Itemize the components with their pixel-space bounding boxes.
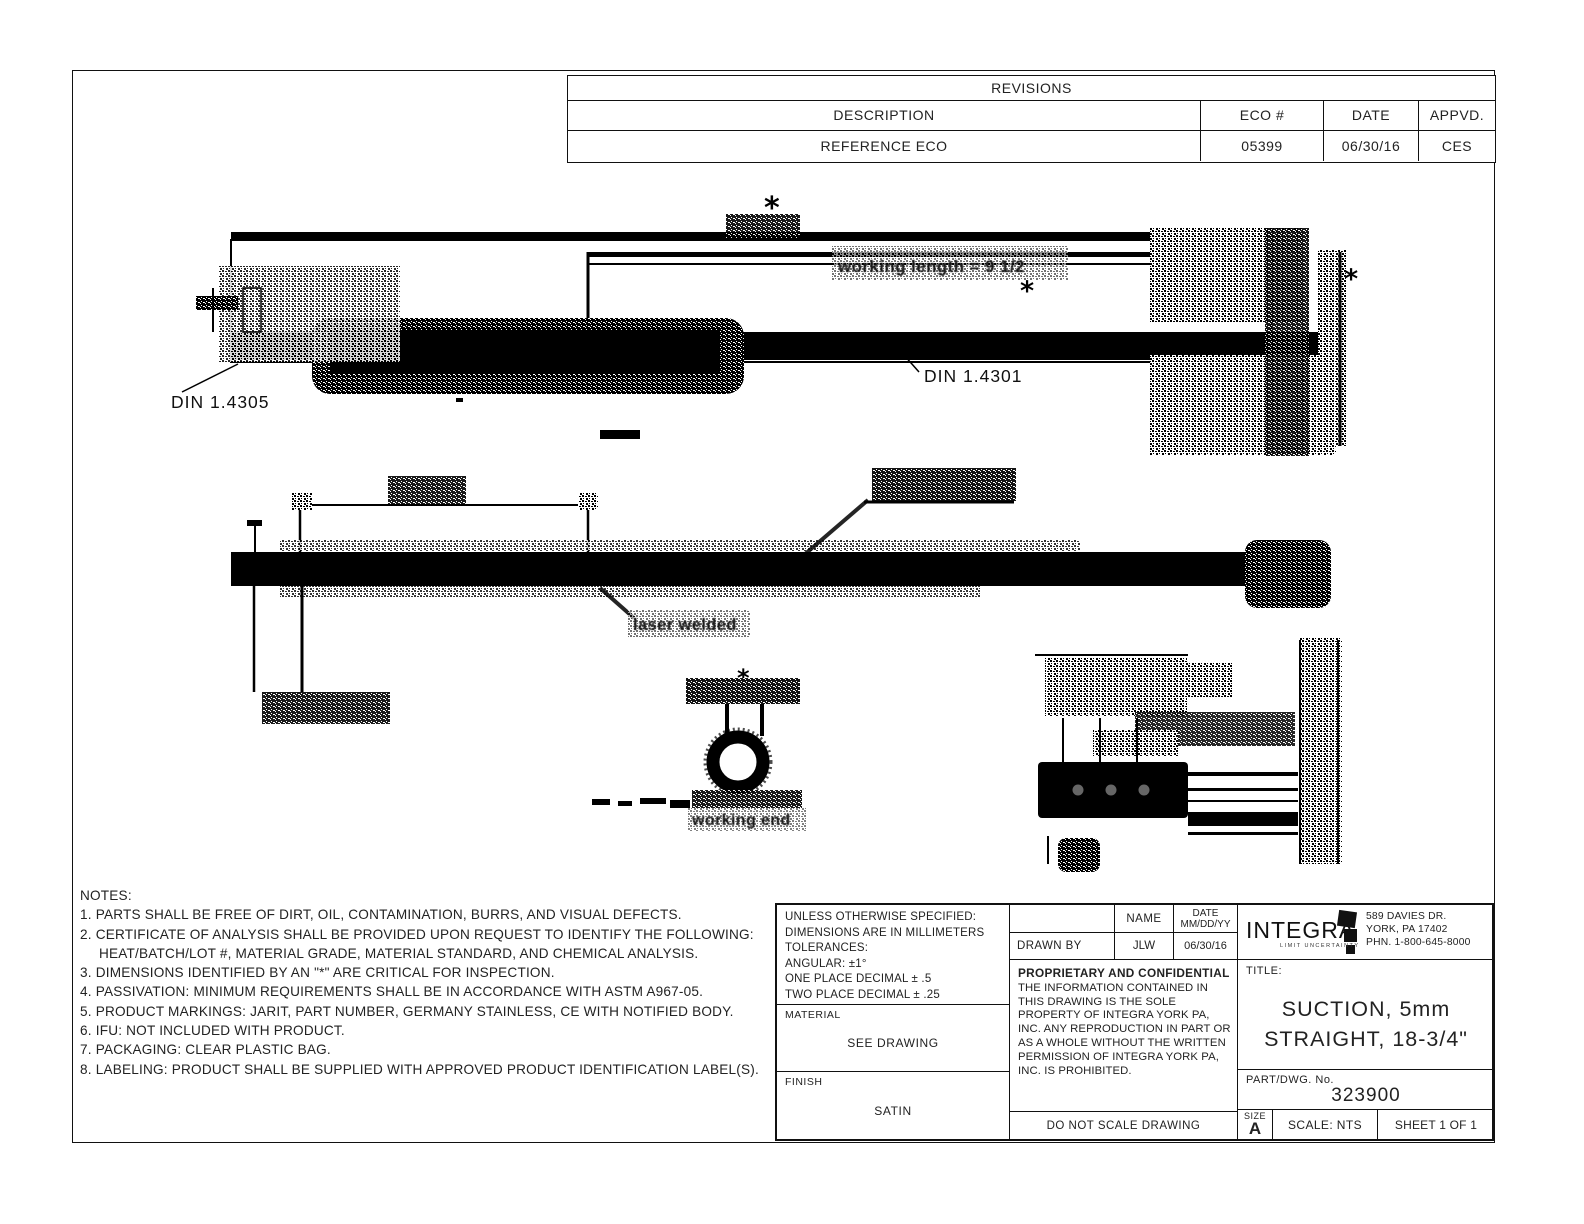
notes-title: NOTES:: [80, 886, 780, 905]
critical-dim-asterisk-3: *: [1344, 264, 1358, 295]
tolerance-line-6: TWO PLACE DECIMAL ± .25: [785, 988, 1009, 1004]
address-line-2: YORK, PA 17402: [1366, 924, 1471, 937]
marking-text-blob: [262, 692, 390, 724]
finish-cell: FINISH SATIN: [777, 1072, 1010, 1139]
working-length-annotation: working length = 9 1/2: [837, 257, 1025, 276]
tolerance-line-5: ONE PLACE DECIMAL ± .5: [785, 972, 1009, 988]
name-header-cell: NAME: [1115, 905, 1174, 933]
date-header-line2: MM/DD/YY: [1174, 919, 1237, 930]
part-number-value: 323900: [1238, 1085, 1494, 1107]
address-line-3: PHN. 1-800-645-8000: [1366, 937, 1471, 950]
suction-shaft-2: [231, 552, 1245, 586]
drawn-by-label: DRAWN BY: [1010, 933, 1115, 960]
note-item-3: 3. DIMENSIONS IDENTIFIED BY AN "*" ARE C…: [80, 963, 780, 982]
date-header-cell: DATE MM/DD/YY: [1174, 905, 1238, 933]
critical-dim-asterisk-1: *: [764, 191, 780, 226]
size-cell: SIZE A: [1238, 1110, 1273, 1141]
note-item-5: 5. PRODUCT MARKINGS: JARIT, PART NUMBER,…: [80, 1002, 780, 1021]
integra-tagline: LIMIT UNCERTAINTY: [1280, 943, 1360, 949]
company-address: 589 DAVIES DR. YORK, PA 17402 PHN. 1-800…: [1366, 911, 1471, 949]
tolerance-line-2: DIMENSIONS ARE IN MILLIMETERS: [785, 926, 1009, 942]
date-header-line1: DATE: [1174, 908, 1237, 919]
size-value: A: [1238, 1121, 1272, 1137]
material-value: SEE DRAWING: [777, 1036, 1009, 1050]
title-label: TITLE:: [1246, 965, 1282, 977]
working-end-detail: * working end: [592, 664, 806, 831]
proprietary-cell: PROPRIETARY AND CONFIDENTIAL THE INFORMA…: [1010, 960, 1238, 1112]
handle-detail: [1035, 638, 1342, 872]
note-item-6: 6. IFU: NOT INCLUDED WITH PRODUCT.: [80, 1021, 780, 1040]
scale-cell: SCALE: NTS: [1273, 1110, 1378, 1141]
drawn-by-name: JLW: [1115, 933, 1174, 960]
header-empty-cell: [1010, 905, 1115, 933]
company-logo-cell: INTEGRA LIMIT UNCERTAINTY 589 DAVIES DR.…: [1238, 905, 1494, 960]
tolerance-line-4: ANGULAR: ±1°: [785, 957, 1009, 973]
din-1-4305-label: DIN 1.4305: [171, 392, 270, 412]
finish-value: SATIN: [777, 1104, 1009, 1118]
note-item-7: 7. PACKAGING: CLEAR PLASTIC BAG.: [80, 1040, 780, 1059]
integra-logo-icon: [1344, 929, 1357, 942]
drawing-title: SUCTION, 5mm STRAIGHT, 18-3/4": [1238, 994, 1494, 1054]
address-line-1: 589 DAVIES DR.: [1366, 911, 1471, 924]
do-not-scale-cell: DO NOT SCALE DRAWING: [1010, 1112, 1238, 1141]
proprietary-body: THE INFORMATION CONTAINED IN THIS DRAWIN…: [1018, 982, 1233, 1079]
notes-list: 1. PARTS SHALL BE FREE OF DIRT, OIL, CON…: [80, 905, 780, 1079]
din-1-4301-label: DIN 1.4301: [924, 366, 1023, 386]
working-end-annotation: working end: [691, 812, 791, 829]
integra-logo-icon: [1337, 910, 1357, 928]
title-cell: TITLE: SUCTION, 5mm STRAIGHT, 18-3/4": [1238, 960, 1494, 1070]
note-item-4: 4. PASSIVATION: MINIMUM REQUIREMENTS SHA…: [80, 982, 780, 1001]
drawing-title-line2: STRAIGHT, 18-3/4": [1238, 1024, 1494, 1054]
note-item-8: 8. LABELING: PRODUCT SHALL BE SUPPLIED W…: [80, 1060, 780, 1079]
material-label: MATERIAL: [785, 1009, 841, 1021]
note-item-1: 1. PARTS SHALL BE FREE OF DIRT, OIL, CON…: [80, 905, 780, 924]
engineering-drawing-page: REVISIONS DESCRIPTION ECO # DATE APPVD. …: [0, 0, 1584, 1224]
drawing-title-line1: SUCTION, 5mm: [1238, 994, 1494, 1024]
tolerance-line-1: UNLESS OTHERWISE SPECIFIED:: [785, 910, 1009, 926]
finish-label: FINISH: [785, 1076, 822, 1088]
notes-section: NOTES: 1. PARTS SHALL BE FREE OF DIRT, O…: [80, 886, 780, 1079]
tolerance-line-3: TOLERANCES:: [785, 941, 1009, 957]
tube-callout-blob: [872, 468, 1016, 501]
tube-cross-section: [713, 737, 763, 787]
top-view-instrument: * working length = 9 1/2 * * DIN 1.4305 …: [171, 191, 1358, 456]
note-item-2: 2. CERTIFICATE OF ANALYSIS SHALL BE PROV…: [80, 925, 780, 964]
critical-dim-asterisk-2: *: [1020, 276, 1034, 307]
laser-welded-annotation: laser welded: [633, 616, 737, 634]
title-block: UNLESS OTHERWISE SPECIFIED: DIMENSIONS A…: [775, 903, 1494, 1141]
drawn-by-date: 06/30/16: [1174, 933, 1238, 960]
part-number-cell: PART/DWG. No. 323900: [1238, 1070, 1494, 1110]
material-cell: MATERIAL SEE DRAWING: [777, 1005, 1010, 1072]
suction-tip: [1245, 540, 1331, 608]
proprietary-title: PROPRIETARY AND CONFIDENTIAL: [1018, 966, 1230, 980]
tolerances-cell: UNLESS OTHERWISE SPECIFIED: DIMENSIONS A…: [777, 905, 1010, 1005]
sheet-cell: SHEET 1 OF 1: [1378, 1110, 1494, 1141]
